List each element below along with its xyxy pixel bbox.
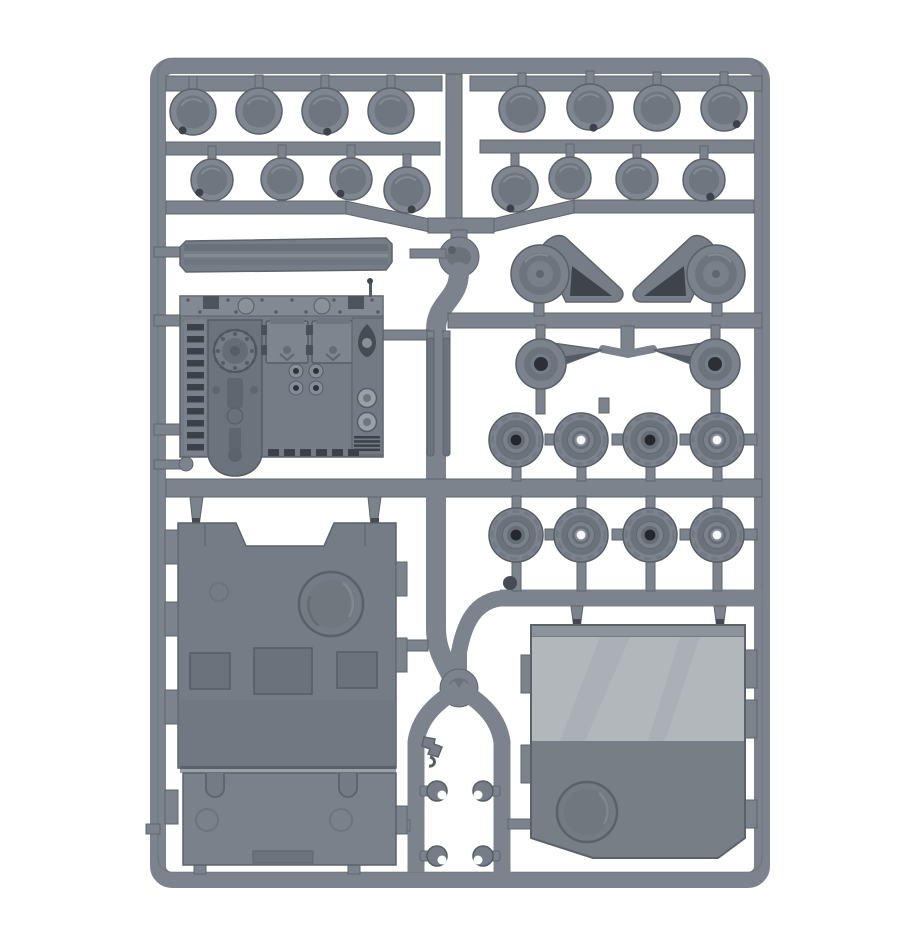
vehicle-front-armour-plate bbox=[180, 278, 383, 476]
road-wheel-part bbox=[554, 508, 608, 562]
road-wheel-part bbox=[554, 413, 608, 467]
hub-cap-part bbox=[492, 153, 538, 213]
carrier-bar bbox=[166, 76, 442, 91]
carrier-bar bbox=[574, 200, 754, 213]
ornate-column bbox=[208, 320, 262, 476]
road-wheel-part bbox=[690, 508, 744, 562]
road-wheel-part bbox=[489, 413, 543, 467]
hub-cap-part bbox=[384, 154, 430, 214]
carrier-bar bbox=[166, 142, 440, 155]
rear-ramp-door-panel bbox=[521, 625, 757, 858]
sprue-photo bbox=[0, 0, 918, 948]
road-wheel-part bbox=[489, 508, 543, 562]
drive-sprocket-housing bbox=[633, 236, 745, 316]
drive-sprocket-housing bbox=[511, 236, 623, 316]
road-wheel-part bbox=[623, 508, 677, 562]
embossed-plate bbox=[190, 653, 230, 689]
reflective-face bbox=[531, 637, 745, 741]
carrier-bar bbox=[166, 201, 346, 214]
lamp-column bbox=[352, 318, 383, 455]
road-wheel-part bbox=[623, 413, 677, 467]
axle-hub-part bbox=[654, 325, 740, 414]
hub-cap-part bbox=[683, 146, 725, 201]
sprue-illustration bbox=[0, 0, 918, 948]
antenna bbox=[369, 283, 372, 297]
tow-hooks bbox=[420, 781, 500, 866]
carrier-bar bbox=[480, 140, 754, 153]
axle-hub-part bbox=[516, 325, 602, 414]
road-wheel-part bbox=[690, 413, 744, 467]
mid-runner bbox=[166, 479, 762, 497]
arch-leg bbox=[416, 688, 459, 872]
periscope-part bbox=[422, 737, 442, 766]
embossed-plate bbox=[254, 648, 312, 694]
vent-slats bbox=[184, 320, 206, 455]
centre-runner bbox=[446, 74, 462, 226]
gate-remnant bbox=[503, 576, 517, 590]
embossed-plate bbox=[337, 652, 377, 688]
large-hull-roof-panel bbox=[165, 523, 407, 865]
track-guard-rail bbox=[180, 238, 392, 272]
